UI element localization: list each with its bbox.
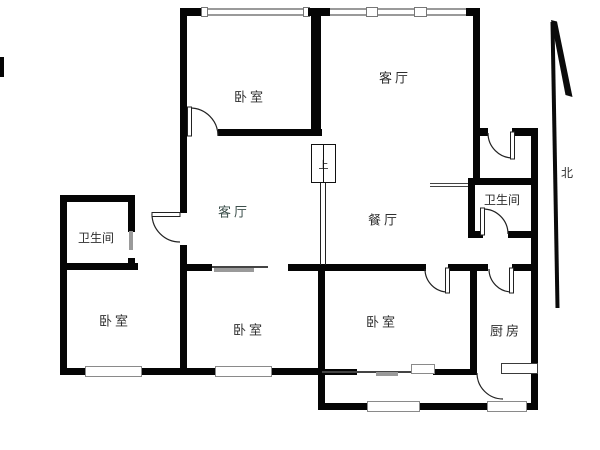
- room-label-bath-left: 卫生间: [78, 232, 114, 244]
- north-arrow-shaft: [553, 22, 558, 308]
- door-and-compass-overlay: [0, 0, 600, 450]
- compass-north-label: 北: [561, 167, 573, 179]
- door-leaf-bedroom-right: [446, 268, 450, 293]
- room-label-bedroom-right: 卧室: [366, 316, 398, 329]
- door-arc-closet: [488, 133, 513, 158]
- room-label-bedroom-middle: 卧室: [233, 324, 265, 337]
- door-arc-bedroom-right: [425, 269, 448, 292]
- room-label-dining: 餐厅: [368, 214, 400, 227]
- room-label-kitchen: 厨房: [490, 325, 522, 338]
- door-leaf-kitchen: [510, 268, 514, 293]
- door-leaf-suite-entry: [152, 213, 180, 217]
- room-label-bath-right: 卫生间: [484, 194, 520, 206]
- door-arc-kitchen: [489, 269, 512, 292]
- door-arc-suite-entry: [152, 214, 180, 242]
- room-label-bedroom-left: 卧室: [99, 315, 131, 328]
- door-leaf-closet: [511, 132, 515, 159]
- door-leaf-bedroom-top: [188, 107, 192, 136]
- floor-plan: 上 卧室 客厅 客厅 餐厅 卫生间 卫生间 卧室 卧室 卧室 厨房: [0, 0, 600, 450]
- door-leaf-bath-right: [481, 208, 485, 235]
- room-label-living-b: 客厅: [218, 206, 250, 219]
- room-label-living-a: 客厅: [379, 72, 411, 85]
- room-label-bedroom-top: 卧室: [234, 91, 266, 104]
- door-arc-bath-right: [483, 209, 508, 234]
- door-arc-balcony: [477, 373, 503, 399]
- door-arc-bedroom-top: [190, 108, 218, 136]
